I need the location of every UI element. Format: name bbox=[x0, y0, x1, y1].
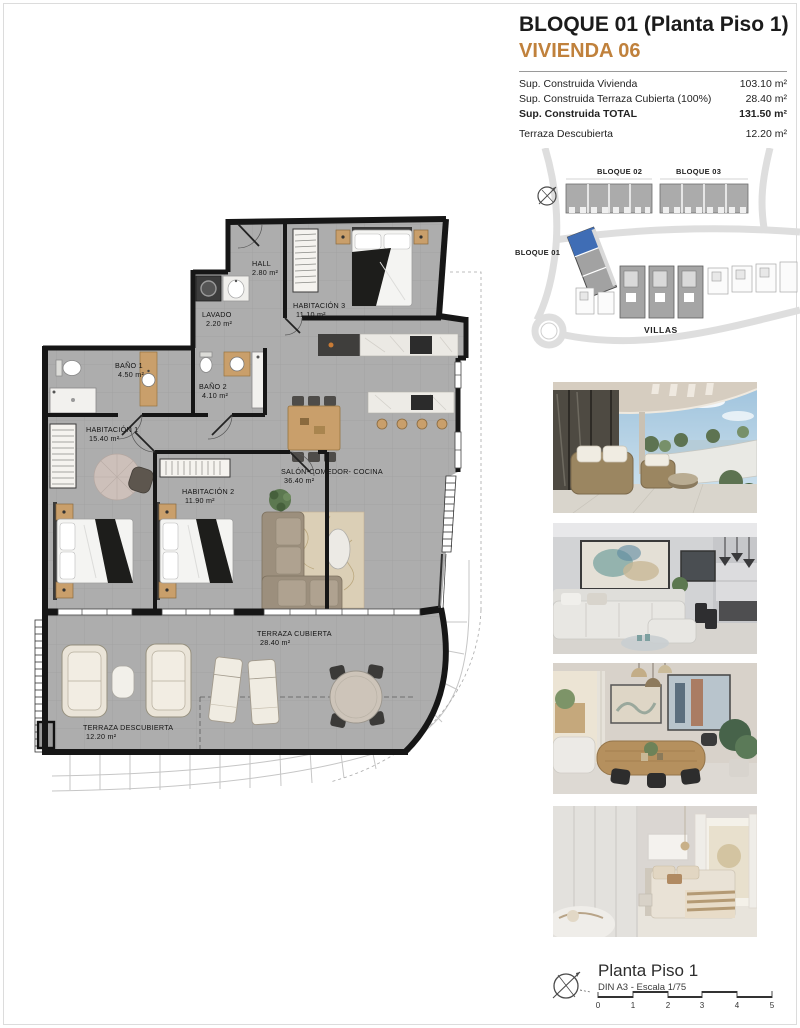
area-label: Sup. Construida Vivienda bbox=[519, 77, 637, 92]
photo-terrace bbox=[553, 382, 757, 513]
area-label: Sup. Construida TOTAL bbox=[519, 107, 637, 122]
site-villas-shaded bbox=[620, 266, 703, 318]
bed bbox=[645, 866, 735, 918]
photo-living-room bbox=[553, 523, 757, 654]
area-row: Sup. Construida Terraza Cubierta (100%) … bbox=[519, 92, 787, 107]
footer: Planta Piso 1 DIN A3 - Escala 1/75 0 1 2… bbox=[510, 948, 800, 1023]
room-label: HABITACIÓN 2 bbox=[182, 487, 234, 496]
room-area: 4.50 m² bbox=[118, 370, 144, 379]
terrace-sofa-1 bbox=[62, 645, 107, 717]
header: BLOQUE 01 (Planta Piso 1) VIVIENDA 06 Su… bbox=[519, 12, 787, 142]
room-label: LAVADO bbox=[202, 310, 232, 319]
room-label: TERRAZA DESCUBIERTA bbox=[83, 723, 173, 732]
header-divider bbox=[519, 71, 787, 72]
roundabout-center bbox=[541, 323, 557, 339]
area-label: Sup. Construida Terraza Cubierta (100%) bbox=[519, 92, 711, 107]
wardrobe-habitacion3 bbox=[293, 229, 318, 292]
svg-text:1: 1 bbox=[631, 1001, 636, 1010]
room-area: 2.20 m² bbox=[206, 319, 232, 328]
wall-art-1 bbox=[611, 685, 661, 723]
kitchen-counter bbox=[318, 334, 458, 356]
terrace-dining-set bbox=[329, 664, 385, 729]
unit-title: VIVIENDA 06 bbox=[519, 39, 787, 64]
coffee-table bbox=[326, 529, 350, 569]
svg-text:5: 5 bbox=[770, 1001, 775, 1010]
site-plan: BLOQUE 02 BLOQUE 03 BLOQUE 01 VILLAS bbox=[505, 148, 800, 353]
floor-plan: HALL 2.80 m² LAVADO 2.20 m² HABITACIÓN 3… bbox=[10, 195, 520, 795]
room-area: 11.10 m² bbox=[296, 310, 326, 319]
room-area: 12.20 m² bbox=[86, 732, 117, 741]
compass-icon bbox=[553, 972, 590, 998]
svg-text:3: 3 bbox=[700, 1001, 705, 1010]
area-label: Terraza Descubierta bbox=[519, 127, 613, 142]
room-area: 2.80 m² bbox=[252, 268, 278, 277]
site-building-bloque03 bbox=[660, 179, 748, 213]
site-building-bloque01 bbox=[567, 227, 617, 297]
area-value: 103.10 m² bbox=[740, 77, 787, 92]
room-label: HABITACIÓN 3 bbox=[293, 301, 345, 310]
wardrobe-habitacion1 bbox=[50, 424, 76, 488]
wardrobe-habitacion2 bbox=[160, 459, 230, 477]
room-area: 28.40 m² bbox=[260, 638, 291, 647]
area-table: Sup. Construida Vivienda 103.10 m² Sup. … bbox=[519, 77, 787, 142]
area-row: Terraza Descubierta 12.20 m² bbox=[519, 127, 787, 142]
site-label-bloque03: BLOQUE 03 bbox=[676, 167, 721, 176]
site-label-bloque01: BLOQUE 01 bbox=[515, 248, 560, 257]
wall-art-large bbox=[581, 541, 669, 589]
site-label-villas: VILLAS bbox=[644, 325, 678, 335]
wall-art-small bbox=[681, 551, 715, 581]
svg-text:2: 2 bbox=[666, 1001, 671, 1010]
area-value: 131.50 m² bbox=[739, 107, 787, 122]
terrace-sofa-2 bbox=[146, 644, 191, 717]
area-row: Sup. Construida Vivienda 103.10 m² bbox=[519, 77, 787, 92]
area-value: 28.40 m² bbox=[746, 92, 787, 107]
photo-bedroom bbox=[553, 806, 757, 937]
room-area: 4.10 m² bbox=[202, 391, 228, 400]
room-label: BAÑO 2 bbox=[199, 382, 227, 391]
photo-dining-room bbox=[553, 663, 757, 794]
striped-throw bbox=[685, 890, 735, 918]
plan-sheet: BLOQUE 01 (Planta Piso 1) VIVIENDA 06 Su… bbox=[0, 0, 800, 1028]
area-row: Sup. Construida TOTAL 131.50 m² bbox=[519, 107, 787, 122]
room-area: 11.90 m² bbox=[185, 496, 215, 505]
wall-art-2 bbox=[668, 675, 730, 730]
footer-title: Planta Piso 1 bbox=[598, 961, 698, 980]
room-label: HALL bbox=[252, 259, 271, 268]
nightstand bbox=[639, 894, 652, 906]
svg-text:0: 0 bbox=[596, 1001, 601, 1010]
site-building-bloque02 bbox=[566, 179, 652, 213]
room-label: SALÓN-COMEDOR- COCINA bbox=[281, 467, 383, 476]
room-label: BAÑO 1 bbox=[115, 361, 143, 370]
area-value: 12.20 m² bbox=[746, 127, 787, 142]
sun-lounger-2 bbox=[248, 659, 279, 725]
scale-numbers: 0 1 2 3 4 5 bbox=[596, 1001, 775, 1010]
site-label-bloque02: BLOQUE 02 bbox=[597, 167, 642, 176]
page-title: BLOQUE 01 (Planta Piso 1) bbox=[519, 12, 787, 38]
sofa-edge bbox=[553, 737, 595, 773]
svg-text:4: 4 bbox=[735, 1001, 740, 1010]
room-area: 36.40 m² bbox=[284, 476, 315, 485]
terrace-side-table bbox=[112, 666, 134, 698]
sofa-white bbox=[553, 589, 696, 643]
room-area: 15.40 m² bbox=[89, 434, 120, 443]
dining-table bbox=[288, 396, 340, 462]
room-label: HABITACIÓN 1 bbox=[86, 425, 138, 434]
room-label: TERRAZA CUBIERTA bbox=[257, 629, 332, 638]
